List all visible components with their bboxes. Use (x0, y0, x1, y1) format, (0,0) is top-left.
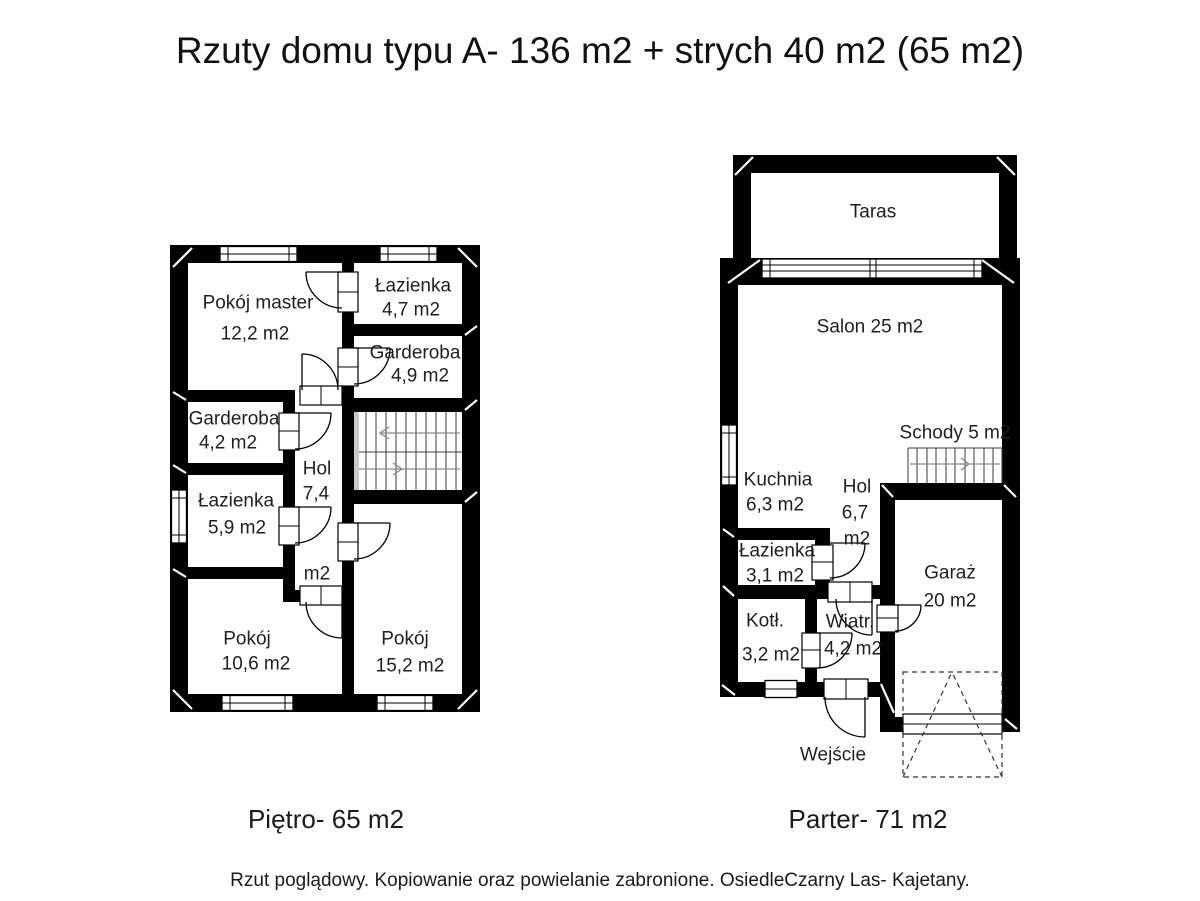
room-label-kuchnia: Kuchnia (744, 470, 813, 491)
room-label-lazienka-ground: Łazienka (739, 541, 815, 562)
staircase-ground (908, 448, 1002, 483)
room-label-hol: Hol (303, 459, 332, 480)
staircase-upper (354, 412, 462, 490)
room-label-hol-ground: Hol (843, 477, 872, 498)
room-label-lazienka-top: Łazienka (375, 276, 451, 297)
page-title: Rzuty domu typu A- 136 m2 + strych 40 m2… (0, 30, 1200, 72)
room-label-pokoj-large: Pokój (381, 629, 429, 650)
room-label-schody: Schody 5 m2 (900, 423, 1011, 444)
floorplan-ground: Taras Salon 25 m2 Schody 5 m2 Kuchnia 6,… (720, 155, 1020, 780)
floor-label-upper: Piętro- 65 m2 (248, 804, 404, 835)
room-label-garderoba-left: Garderoba (189, 409, 280, 430)
room-unit-hol-ground: m2 (844, 529, 870, 550)
floor-label-ground: Parter- 71 m2 (789, 804, 948, 835)
entrance-label: Wejście (800, 745, 866, 766)
room-label-master: Pokój master (203, 293, 315, 314)
room-label-garaz: Garaż (924, 563, 976, 584)
room-label-wiatr: Wiatr. (826, 612, 875, 633)
room-area-garaz: 20 m2 (924, 591, 977, 612)
floorplan-sheet: Rzuty domu typu A- 136 m2 + strych 40 m2… (0, 0, 1200, 901)
floorplan-upper: Pokój master 12,2 m2 Łazienka 4,7 m2 Gar… (170, 245, 480, 712)
room-area-hol: 7,4 (303, 484, 330, 505)
room-area-hol-ground: 6,7 (842, 503, 868, 524)
room-area-master: 12,2 m2 (221, 324, 290, 345)
room-area-kotl: 3,2 m2 (742, 645, 800, 666)
room-label-lazienka-left: Łazienka (198, 491, 274, 512)
disclaimer-text: Rzut poglądowy. Kopiowanie oraz powielan… (0, 870, 1200, 892)
room-area-garderoba-left: 4,2 m2 (199, 433, 257, 454)
room-area-lazienka-left: 5,9 m2 (208, 518, 266, 539)
room-label-salon: Salon 25 m2 (817, 317, 924, 338)
room-area-lazienka-top: 4,7 m2 (382, 300, 440, 321)
room-label-garderoba-right: Garderoba (370, 343, 461, 364)
room-area-pokoj-small: 10,6 m2 (222, 654, 291, 675)
room-area-pokoj-large: 15,2 m2 (376, 656, 445, 677)
room-label-kotl: Kotł. (746, 611, 784, 632)
room-unit-hol: m2 (304, 564, 330, 585)
room-label-taras: Taras (850, 202, 896, 223)
room-area-kuchnia: 6,3 m2 (746, 495, 804, 516)
room-area-garderoba-right: 4,9 m2 (391, 366, 449, 387)
room-area-lazienka-ground: 3,1 m2 (746, 566, 804, 587)
room-area-wiatr: 4,2 m2 (824, 639, 882, 660)
room-label-pokoj-small: Pokój (223, 629, 271, 650)
